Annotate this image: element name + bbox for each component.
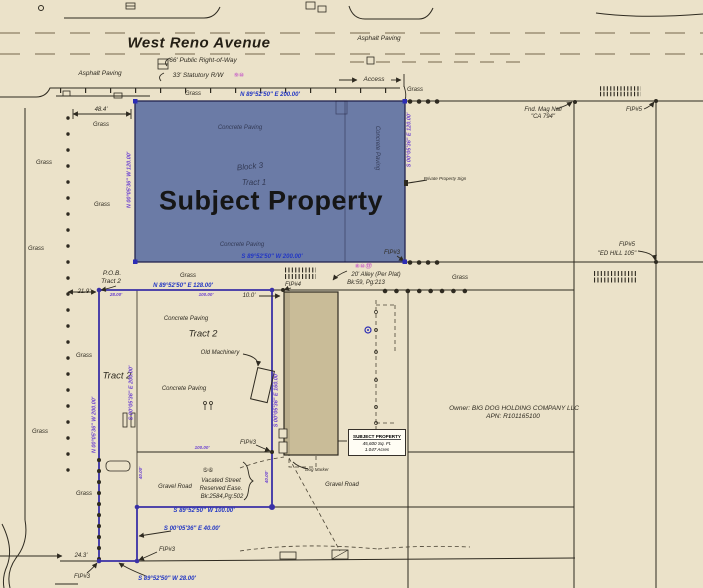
north-curb-2 <box>349 6 433 19</box>
north-curb-3 <box>596 13 703 16</box>
street-lane-lines <box>0 33 703 62</box>
info-box-area-sqft: 45,600 Sq. Ft. <box>363 441 392 446</box>
easement-dashed-lines <box>240 300 470 551</box>
terrain-line-1 <box>9 520 26 588</box>
info-box-area-acres: 1.047 Acres <box>365 447 389 452</box>
building-footprint <box>279 292 338 455</box>
manhole-icon <box>39 6 44 11</box>
south-lot-line <box>137 558 575 561</box>
tank-outline <box>106 461 130 471</box>
subject-property-info-box: SUBJECT PROPERTY 45,600 Sq. Ft. 1.047 Ac… <box>348 429 406 456</box>
north-curb-1 <box>64 7 220 18</box>
survey-plat-map: SUBJECT PROPERTY 45,600 Sq. Ft. 1.047 Ac… <box>0 0 703 588</box>
section-and-lot-lines <box>0 6 703 588</box>
tract2-boundary <box>99 290 272 561</box>
old-machinery-outline <box>251 368 275 403</box>
info-box-title: SUBJECT PROPERTY <box>353 434 401 440</box>
utility-icons <box>63 2 374 98</box>
vacated-street-brace <box>243 462 253 500</box>
private-property-sign-symbol <box>404 180 408 186</box>
survey-drawing <box>0 0 703 588</box>
subject-property-parcel <box>135 101 405 262</box>
gravel-road-edge-dashed <box>289 458 340 551</box>
